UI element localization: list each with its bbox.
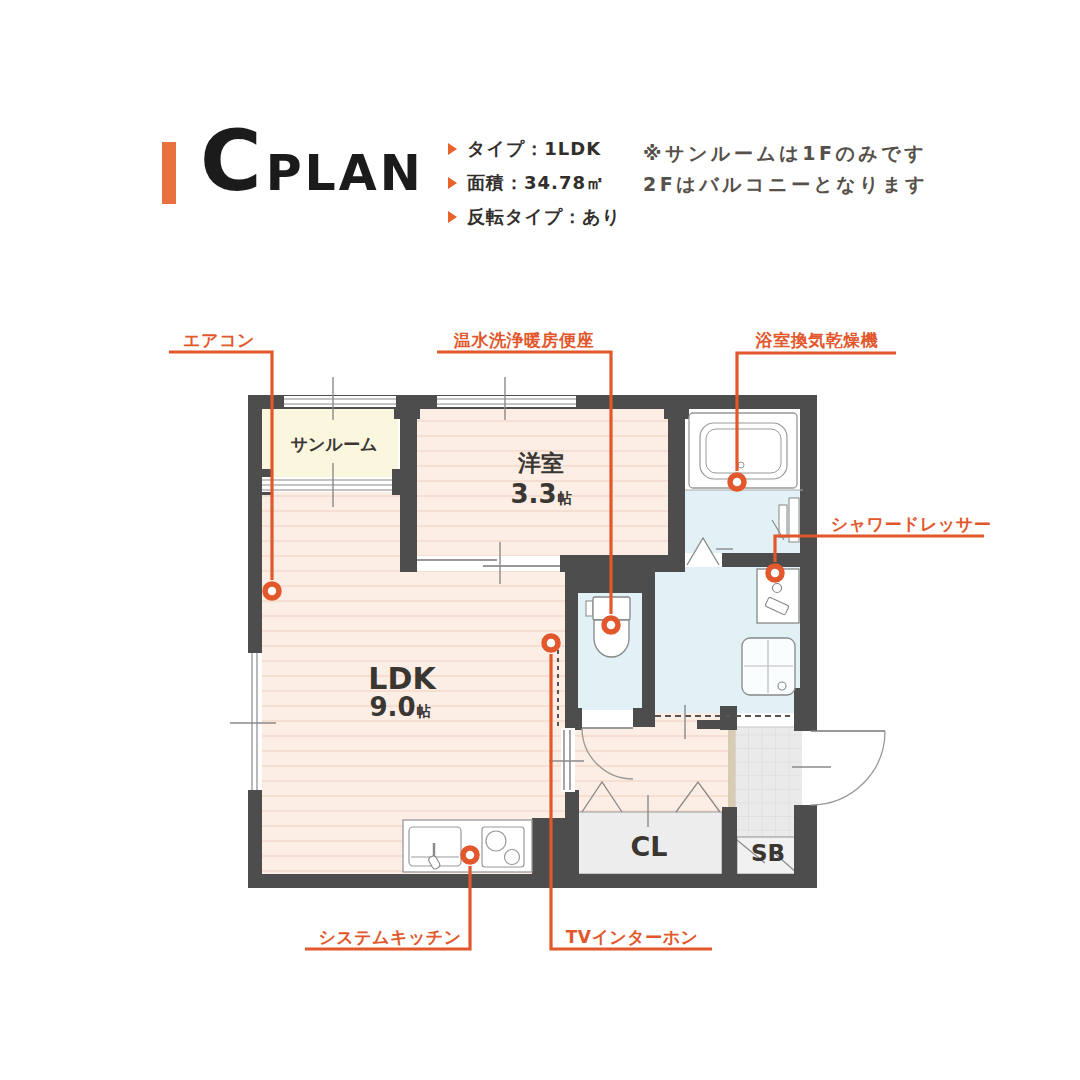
dot-tv-intercom <box>544 636 558 650</box>
dot-bathroom-dryer <box>730 475 744 489</box>
wall-below-western <box>560 555 685 572</box>
toilet-door-opening <box>582 710 633 729</box>
wall-kitchen-block <box>532 818 578 874</box>
wall-stub <box>565 708 582 730</box>
wall-closet-right <box>722 807 737 888</box>
dot-washlet <box>604 618 618 632</box>
wall-stub <box>633 708 655 727</box>
callout-air-conditioner: エアコン <box>183 330 255 350</box>
callout-bathroom-dryer: 浴室換気乾燥機 <box>755 330 879 350</box>
wall-toilet-left <box>565 572 578 730</box>
wall-cap <box>664 395 689 419</box>
wall-left-upper <box>248 395 262 653</box>
dot-air-conditioner <box>265 584 279 598</box>
label-sunroom: サンルーム <box>291 434 378 454</box>
callout-system-kitchen: システムキッチン <box>318 927 461 947</box>
entrance-tile-floor <box>735 727 803 837</box>
wall-entrance-lip <box>697 720 737 729</box>
callout-washlet: 温水洗浄暖房便座 <box>453 330 594 350</box>
ldk-window <box>249 653 261 790</box>
wall-entrance-upper-block <box>794 688 817 731</box>
western-room-window <box>437 396 576 407</box>
callout-shower-dresser: シャワードレッサー <box>831 514 991 534</box>
washer-pan-icon <box>742 638 795 695</box>
wall-left-lower <box>248 790 262 888</box>
dot-system-kitchen <box>463 848 477 862</box>
sunroom-top-window <box>284 396 396 407</box>
entrance-door-swing <box>811 731 885 805</box>
wall-toilet-right <box>642 572 655 718</box>
wall-bath-bottom <box>722 553 803 567</box>
label-closet: CL <box>630 831 667 862</box>
ldk-hall-opening <box>561 728 575 792</box>
callout-tv-intercom: TVインターホン <box>566 927 699 947</box>
western-room-sliding-door <box>417 556 560 571</box>
wall-cap <box>392 469 417 495</box>
wall-cap <box>394 395 420 419</box>
dot-shower-dresser <box>768 566 782 580</box>
floor-plan-page: C PLAN タイプ：1LDK 面積：34.78㎡ 反転タイプ：あり ※サンルー… <box>0 0 1080 1080</box>
floor-plan-drawing: エアコン 温水洗浄暖房便座 浴室換気乾燥機 シャワードレッサー システムキッチン… <box>0 0 1080 1080</box>
entrance-door-opening <box>802 731 815 805</box>
label-ldk: LDK <box>368 661 437 696</box>
label-shoe-box: SB <box>751 840 785 866</box>
label-western-room: 洋室 <box>517 450 564 476</box>
wall-western-bath <box>668 395 685 572</box>
